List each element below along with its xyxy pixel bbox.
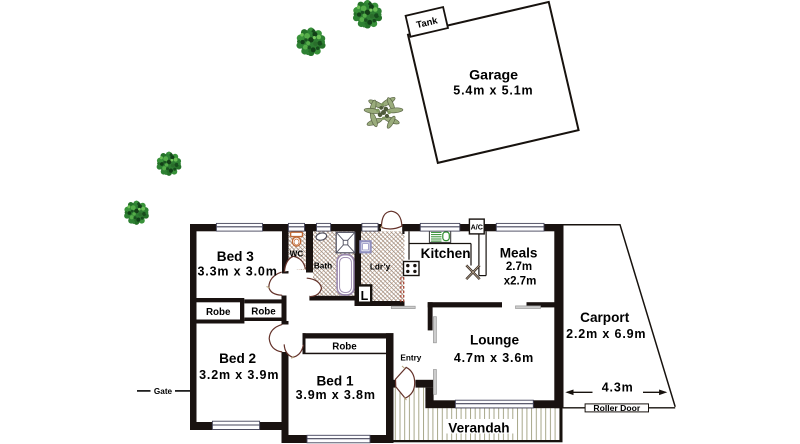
svg-text:Ldr’y: Ldr’y — [370, 263, 391, 272]
svg-text:4.7m x 3.6m: 4.7m x 3.6m — [454, 351, 534, 365]
svg-text:Bed 3: Bed 3 — [217, 249, 254, 264]
svg-text:Carport: Carport — [580, 310, 630, 325]
svg-text:Lounge: Lounge — [470, 332, 520, 347]
svg-text:Robe: Robe — [251, 306, 276, 317]
svg-text:Garage: Garage — [469, 68, 518, 84]
svg-text:Verandah: Verandah — [448, 420, 509, 435]
svg-text:Gate: Gate — [154, 387, 173, 396]
svg-text:Bed 2: Bed 2 — [219, 351, 256, 366]
svg-text:Kitchen: Kitchen — [421, 246, 471, 261]
svg-text:2.2m x 6.9m: 2.2m x 6.9m — [566, 327, 646, 341]
svg-text:L: L — [361, 289, 369, 303]
svg-text:Bath: Bath — [314, 262, 332, 271]
svg-text:Bed 1: Bed 1 — [316, 374, 353, 389]
svg-text:3.3m x 3.0m: 3.3m x 3.0m — [197, 265, 277, 279]
svg-text:Robe: Robe — [332, 342, 357, 353]
svg-text:3.2m x 3.9m: 3.2m x 3.9m — [199, 368, 279, 382]
svg-text:3.9m x 3.8m: 3.9m x 3.8m — [296, 388, 376, 402]
svg-text:4.3m: 4.3m — [602, 381, 634, 395]
svg-text:5.4m x 5.1m: 5.4m x 5.1m — [453, 84, 533, 98]
svg-text:WC: WC — [290, 249, 304, 258]
svg-text:Entry: Entry — [400, 353, 421, 362]
svg-text:Meals: Meals — [500, 245, 538, 260]
svg-text:A/C: A/C — [471, 222, 483, 231]
svg-text:x2.7m: x2.7m — [504, 275, 537, 287]
svg-text:2.7m: 2.7m — [506, 261, 532, 273]
svg-text:Roller Door: Roller Door — [593, 403, 640, 413]
svg-text:Robe: Robe — [206, 307, 231, 318]
